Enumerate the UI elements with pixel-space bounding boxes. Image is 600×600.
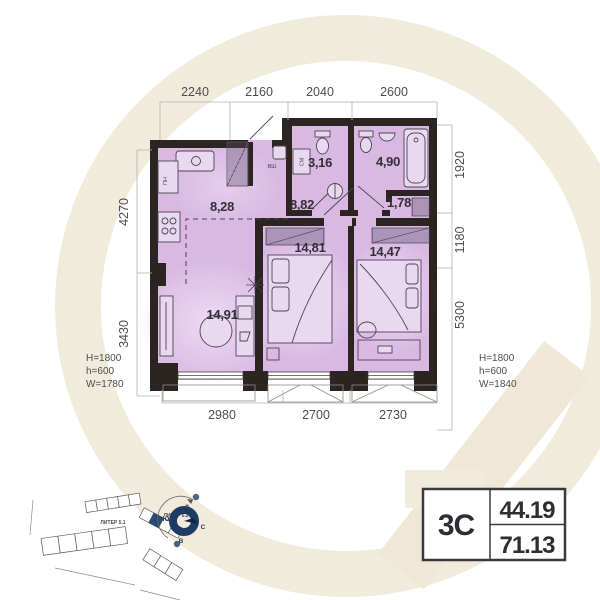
heater-box <box>273 146 286 159</box>
unit-total-area: 71.13 <box>499 532 555 559</box>
unit-living-area: 44.19 <box>499 497 555 524</box>
floor-plan-drawing: ПН СМ ВШ <box>0 0 600 600</box>
dim-bottom-2: 2700 <box>302 408 330 422</box>
compass-south: Ю <box>163 516 170 523</box>
area-bathroom-large: 4,90 <box>376 154 400 169</box>
dim-bottom-3: 2730 <box>379 408 407 422</box>
liter-left-label: ЛИТЕР 5.1 <box>100 520 125 526</box>
balcony-outlines <box>163 385 437 402</box>
dim-right-3: 5300 <box>453 301 467 329</box>
annot-right-3: W=1840 <box>479 379 517 390</box>
dim-left-1: 4270 <box>117 198 131 226</box>
area-kitchen: 8,28 <box>210 199 234 214</box>
windows <box>178 372 414 379</box>
dim-right-2: 1180 <box>453 227 467 254</box>
dim-right-1: 1920 <box>453 151 467 179</box>
unit-type: 3С <box>438 509 475 542</box>
annot-left-1: H=1800 <box>86 353 122 364</box>
dim-top-3: 2040 <box>306 85 334 99</box>
area-hallway: 8,82 <box>290 197 314 212</box>
area-wardrobe-niche: 1,78 <box>387 195 411 210</box>
area-bedroom-center: 14,81 <box>294 240 325 255</box>
unit-card: 3С 44.19 71.13 <box>423 489 565 560</box>
fridge-label: ПН <box>163 177 169 185</box>
dim-top-2: 2160 <box>245 85 273 99</box>
compass: З Ю С В <box>158 494 206 547</box>
area-bathroom-small: 3,16 <box>308 155 332 170</box>
dim-top-1: 2240 <box>181 85 209 99</box>
annot-right-2: h=600 <box>479 366 508 377</box>
annot-right-1: H=1800 <box>479 353 515 364</box>
annot-left-2: h=600 <box>86 366 115 377</box>
area-living-room: 14,91 <box>206 307 237 322</box>
dim-left-2: 3430 <box>117 320 131 348</box>
compass-north: С <box>201 524 206 531</box>
dim-bottom-1: 2980 <box>208 408 236 422</box>
dim-top-4: 2600 <box>380 85 408 99</box>
compass-east: В <box>179 538 184 545</box>
area-bedroom-right: 14,47 <box>369 244 400 259</box>
heater-label: ВШ <box>268 164 277 170</box>
washing-machine-label: СМ <box>300 157 306 166</box>
annot-left-3: W=1780 <box>86 379 124 390</box>
floor-plan-page: ПН СМ ВШ <box>0 0 600 600</box>
compass-west: З <box>185 504 189 511</box>
